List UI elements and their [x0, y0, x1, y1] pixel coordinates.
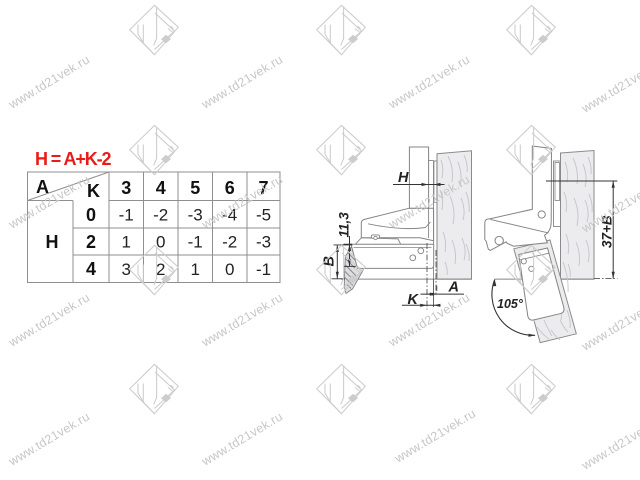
svg-text:-1: -1: [119, 206, 134, 225]
svg-text:www.td21vek.ru: www.td21vek.ru: [5, 52, 92, 112]
svg-text:1: 1: [190, 260, 199, 279]
svg-text:-2: -2: [222, 233, 237, 252]
svg-text:-1: -1: [188, 233, 203, 252]
svg-text:105°: 105°: [497, 297, 524, 311]
svg-text:6: 6: [225, 178, 235, 198]
svg-text:11,3: 11,3: [337, 212, 352, 238]
svg-text:K: K: [408, 292, 420, 308]
svg-text:www.td21vek.ru: www.td21vek.ru: [5, 290, 92, 350]
svg-text:www.td21vek.ru: www.td21vek.ru: [391, 406, 478, 466]
svg-text:-1: -1: [256, 260, 271, 279]
svg-text:1: 1: [121, 233, 130, 252]
svg-text:0: 0: [86, 205, 96, 225]
svg-text:www.td21vek.ru: www.td21vek.ru: [5, 409, 92, 469]
svg-text:www.td21vek.ru: www.td21vek.ru: [198, 172, 285, 232]
svg-text:H = A+K-2: H = A+K-2: [35, 149, 112, 169]
svg-text:0: 0: [225, 260, 234, 279]
svg-text:www.td21vek.ru: www.td21vek.ru: [198, 409, 285, 469]
svg-text:0: 0: [156, 233, 165, 252]
svg-text:-5: -5: [256, 206, 271, 225]
svg-text:H: H: [46, 232, 59, 252]
svg-text:www.td21vek.ru: www.td21vek.ru: [578, 413, 640, 473]
svg-text:-2: -2: [153, 206, 168, 225]
svg-text:www.td21vek.ru: www.td21vek.ru: [578, 294, 640, 354]
svg-text:www.td21vek.ru: www.td21vek.ru: [198, 52, 285, 112]
svg-text:A: A: [448, 280, 459, 296]
svg-text:-3: -3: [256, 233, 271, 252]
svg-text:H: H: [398, 170, 409, 186]
svg-text:4: 4: [86, 259, 96, 279]
svg-text:4: 4: [156, 178, 166, 198]
svg-text:www.td21vek.ru: www.td21vek.ru: [385, 52, 472, 112]
svg-text:2: 2: [156, 260, 165, 279]
svg-text:www.td21vek.ru: www.td21vek.ru: [198, 290, 285, 350]
svg-text:5: 5: [190, 178, 200, 198]
svg-text:2: 2: [86, 232, 96, 252]
svg-text:www.td21vek.ru: www.td21vek.ru: [578, 56, 640, 116]
svg-text:3: 3: [121, 178, 131, 198]
svg-text:www.td21vek.ru: www.td21vek.ru: [385, 290, 472, 350]
